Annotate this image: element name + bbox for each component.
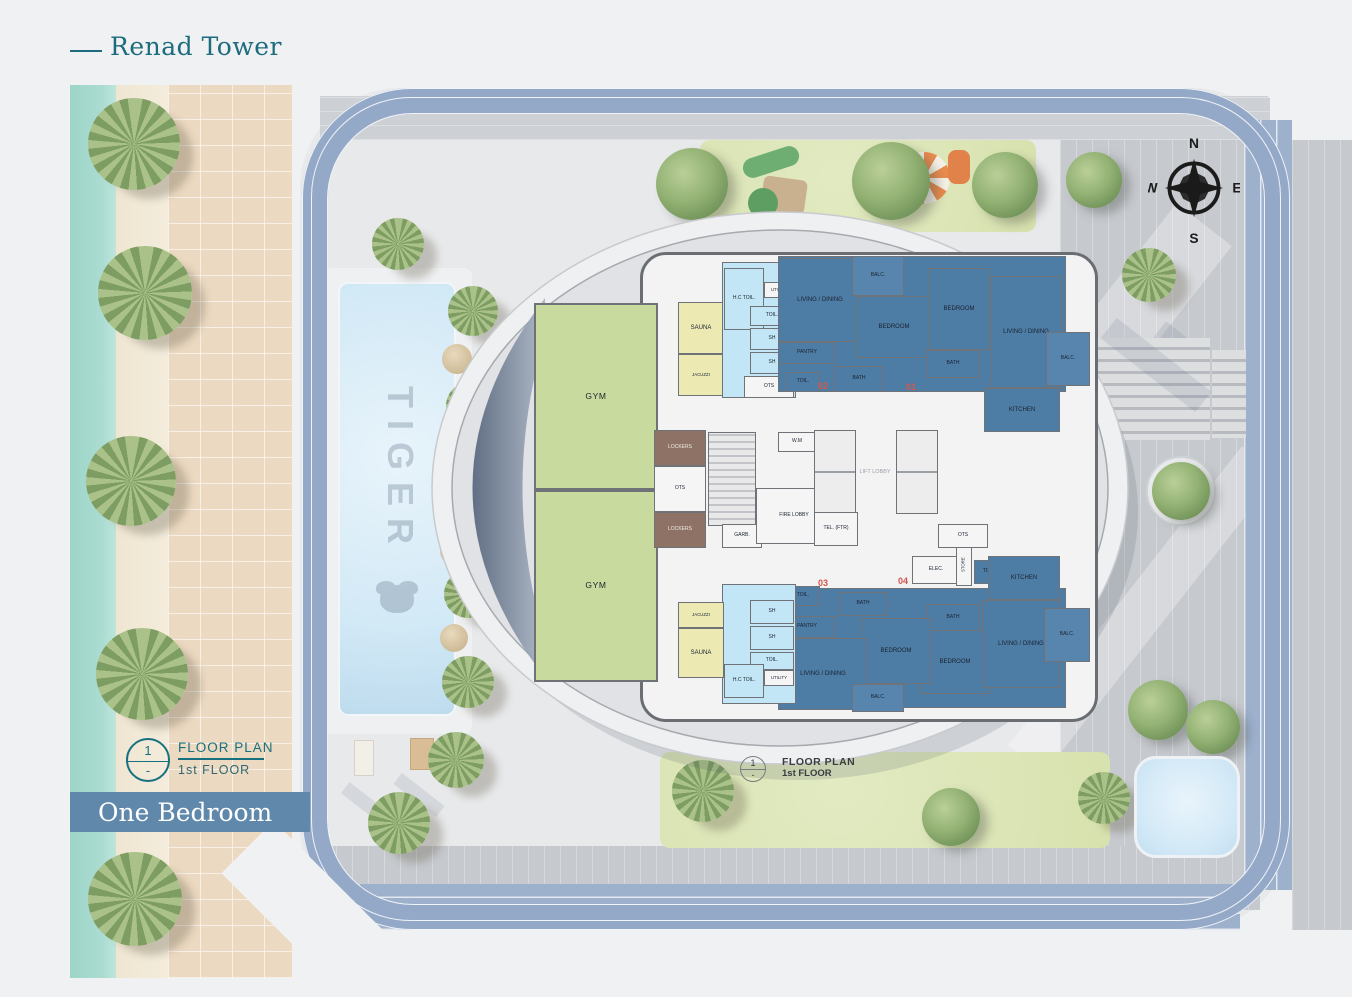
- plan-marker-text: FLOOR PLAN 1st FLOOR: [782, 756, 855, 779]
- svg-text:W: W: [1148, 181, 1158, 196]
- room-tel-ftr: TEL. (FTR): [814, 512, 858, 546]
- plan-marker-number: 1: [750, 757, 755, 769]
- legend-number: 1: [144, 740, 151, 761]
- lift-lobby-label: LIFT LOBBY: [850, 462, 900, 482]
- legend-subtitle: 1st FLOOR: [178, 763, 274, 777]
- room-lockers-2: LOCKERS: [654, 512, 706, 548]
- room-shower-bot-2: SH: [750, 626, 794, 650]
- unit-number-02: 02: [818, 381, 828, 391]
- room-ots-mid: OTS: [654, 466, 706, 512]
- room-toilet-u02: TOIL.: [786, 372, 820, 392]
- legend-text: FLOOR PLAN 1st FLOOR: [178, 740, 274, 777]
- room-jacuzzi-top: JACUZZI: [678, 354, 724, 396]
- room-ots-right: OTS: [938, 524, 988, 548]
- plan-marker-title: FLOOR PLAN: [782, 756, 855, 768]
- room-kitchen-u01: KITCHEN: [984, 388, 1060, 432]
- room-sauna-bot: SAUNA: [678, 628, 724, 678]
- room-bath-u02: BATH: [834, 366, 884, 392]
- room-kitchen-u04: KITCHEN: [988, 556, 1060, 600]
- room-balcony-u01: BALC.: [1046, 332, 1090, 386]
- unit-number-04: 04: [898, 576, 908, 586]
- room-gym-bottom: GYM: [534, 490, 658, 682]
- unit-type-banner: One Bedroom: [70, 792, 310, 832]
- room-elec: ELEC.: [912, 556, 960, 584]
- svg-text:S: S: [1189, 231, 1198, 246]
- plan-marker-dash: -: [752, 770, 755, 780]
- room-store: STORE: [956, 544, 972, 586]
- legend-dash: -: [146, 762, 150, 780]
- room-sauna-top: SAUNA: [678, 302, 724, 354]
- title-line: [70, 50, 102, 52]
- room-lockers-1: LOCKERS: [654, 430, 706, 466]
- page-title: Renad Tower: [110, 32, 282, 61]
- room-balcony-u02: BALC.: [852, 256, 904, 296]
- room-pantry-u02: PANTRY: [778, 342, 836, 364]
- svg-text:N: N: [1189, 136, 1199, 151]
- lift-bank-right: [896, 430, 938, 514]
- legend-title: FLOOR PLAN: [178, 740, 274, 755]
- room-gym-top: GYM: [534, 303, 658, 490]
- room-balcony-u03: BALC.: [852, 684, 904, 712]
- room-jacuzzi-bot: JACUZZI: [678, 602, 724, 628]
- plan-marker-circle: 1 -: [740, 756, 766, 782]
- room-utility-bot: UTILITY: [764, 670, 794, 686]
- room-wm: W.M: [778, 432, 816, 452]
- unit-type-label: One Bedroom: [98, 798, 272, 827]
- room-living-dining-u02: LIVING / DINING: [778, 258, 862, 342]
- room-bedroom-u03: BEDROOM: [860, 618, 932, 684]
- room-shower-bot-1: SH: [750, 600, 794, 624]
- core-stairs: [708, 432, 756, 526]
- room-bath-u01: BATH: [926, 350, 980, 378]
- room-balcony-u04: BALC.: [1044, 608, 1090, 662]
- plan-marker-subtitle: 1st FLOOR: [782, 768, 855, 779]
- unit-number-03: 03: [818, 578, 828, 588]
- legend-line: [178, 758, 264, 760]
- room-bedroom-u02: BEDROOM: [856, 296, 932, 358]
- room-hc-toilet-bot: H.C TOIL.: [724, 664, 764, 698]
- unit-number-01: 01: [906, 382, 916, 392]
- room-bath-u03: BATH: [838, 592, 888, 616]
- room-bath-u04: BATH: [926, 604, 980, 632]
- svg-text:E: E: [1232, 181, 1240, 196]
- legend-circle: 1 -: [126, 738, 170, 782]
- compass-rose: N S W E: [1148, 122, 1240, 254]
- room-bedroom-u01: BEDROOM: [928, 268, 990, 350]
